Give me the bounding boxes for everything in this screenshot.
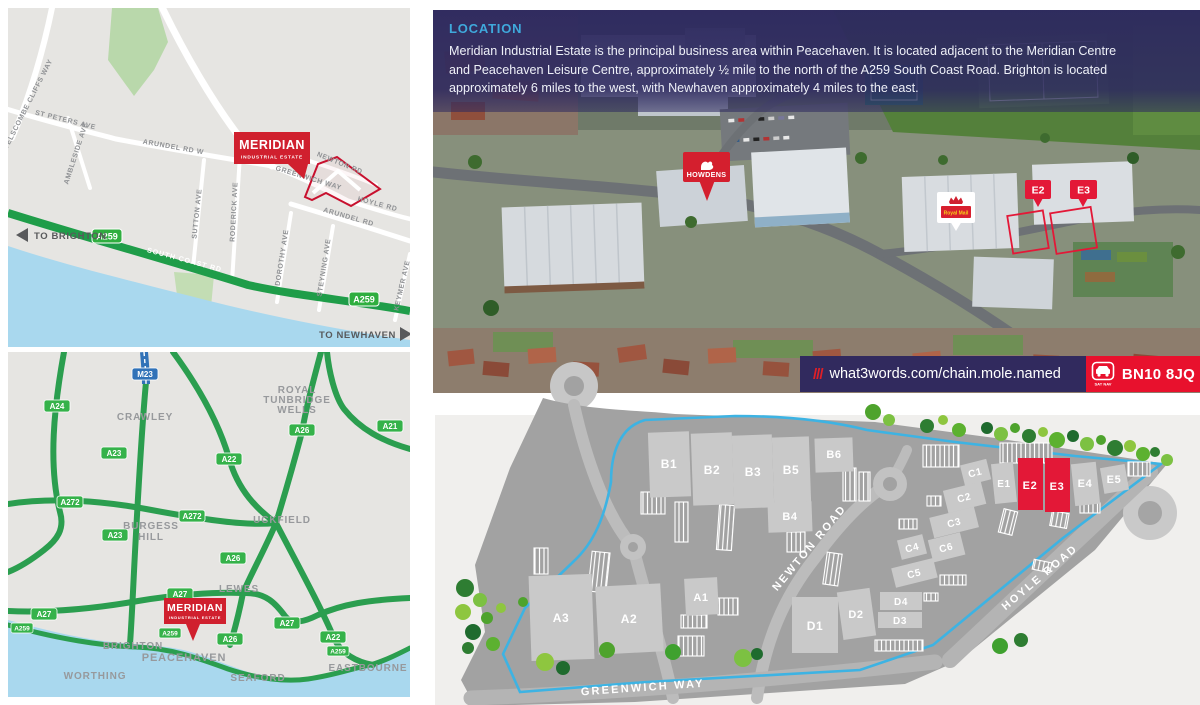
unit-label: E3 [1050, 481, 1065, 493]
svg-text:SAT NAV: SAT NAV [1094, 382, 1111, 387]
unit-label: E4 [1078, 478, 1093, 490]
svg-text:A21: A21 [383, 422, 398, 431]
place-label: HILL [138, 532, 164, 543]
howdens-bird-icon [701, 162, 713, 170]
unit-label: C4 [904, 541, 920, 555]
unit-label: C3 [946, 516, 962, 530]
container-yard [1073, 242, 1173, 297]
howdens-label: HOWDENS [687, 170, 727, 179]
location-body-line: and Peacehaven Leisure Centre, approxima… [449, 61, 1184, 80]
unit-building [595, 583, 663, 654]
route-badge: A259 [11, 623, 33, 633]
unit-label: B4 [782, 511, 798, 523]
unit-building [837, 588, 876, 640]
place-label: BURGESS [123, 521, 179, 532]
unit-building [891, 558, 938, 588]
unit-label: E2 [1023, 480, 1038, 492]
route-badge: A21 [377, 420, 403, 432]
unit-building [960, 459, 991, 486]
route-badge: A23 [102, 529, 128, 541]
svg-text:A259: A259 [14, 626, 30, 633]
svg-text:A26: A26 [223, 635, 238, 644]
place-label: PEACEHAVEN [142, 652, 227, 664]
place-label: SEAFORD [230, 673, 285, 684]
unit-label: B3 [745, 465, 762, 479]
unit-building [767, 501, 812, 533]
unit-label: C2 [956, 491, 972, 505]
route-badge: A259 [327, 646, 349, 656]
location-body-line: approximately 6 miles to the west, with … [449, 79, 1184, 98]
place-label: UCKFIELD [253, 515, 311, 526]
royal-mail-label: Royal Mail [944, 211, 969, 217]
route-badge: A22 [320, 631, 346, 643]
postcode-bar: SAT NAV BN10 8JQ [1086, 356, 1200, 392]
unit-label: C1 [967, 466, 983, 480]
unit-building [772, 436, 811, 503]
svg-text:E3: E3 [1077, 185, 1090, 197]
unit-label: A1 [693, 592, 708, 604]
route-badge: A26 [220, 552, 246, 564]
street-map: TELSCOMBE CLIFFS WAY ST PETERS AVE AMBLE… [8, 8, 410, 347]
unit-label: E5 [1107, 474, 1122, 486]
unit-building [880, 592, 922, 610]
route-badge: M23 [132, 368, 158, 380]
route-badge: A23 [101, 447, 127, 459]
unit-building [928, 532, 966, 562]
what3words-icon: /// [813, 366, 823, 383]
unit-building [1071, 462, 1100, 506]
unit-building [648, 431, 691, 497]
unit-label: E1 [997, 479, 1010, 490]
location-heading: LOCATION [449, 21, 1184, 36]
unit-building [529, 574, 595, 661]
route-badge: A26 [217, 633, 243, 645]
site-plan-panel: B1 B2 B3 B5 B6 B4 C1 C2 C3 C4 C6 C5 E1 E… [435, 350, 1200, 705]
roundabouts [620, 467, 907, 560]
estate-name: MERIDIAN [167, 602, 223, 614]
region-map: CRAWLEY UCKFIELD LEWES WORTHING BRIGHTON… [8, 352, 410, 697]
site-ground [461, 362, 1177, 705]
svg-text:A23: A23 [108, 531, 123, 540]
svg-text:TO BRIGHTON: TO BRIGHTON [34, 231, 107, 242]
unit-label: B6 [826, 449, 841, 461]
unit-building [1100, 464, 1129, 494]
unit-building [943, 481, 986, 513]
route-badge: A22 [216, 453, 242, 465]
estate-subtitle: INDUSTRIAL ESTATE [169, 615, 221, 620]
route-badge: A24 [44, 400, 70, 412]
svg-text:A272: A272 [60, 498, 80, 507]
place-label: WORTHING [64, 671, 127, 682]
roundabout [1123, 486, 1177, 540]
svg-text:A27: A27 [173, 590, 188, 599]
svg-text:A259: A259 [353, 295, 375, 305]
plan-road-labels: NEWTON ROAD HOYLE ROAD GREENWICH WAY [580, 503, 1080, 699]
unit-label: D3 [893, 616, 907, 627]
postcode: BN10 8JQ [1122, 366, 1195, 383]
unit-building [814, 437, 853, 472]
svg-text:A24: A24 [50, 402, 65, 411]
unit-building-highlight [1018, 458, 1043, 510]
place-label: EASTBOURNE [328, 663, 407, 674]
satnav-car-icon: SAT NAV [1091, 361, 1115, 387]
unit-building [732, 434, 775, 508]
route-badge: A272 [57, 496, 83, 508]
svg-text:A259: A259 [162, 631, 178, 638]
route-badge: A272 [179, 510, 205, 522]
what3words-address: what3words.com/chain.mole.named [830, 366, 1061, 382]
unit-buildings [529, 431, 1130, 661]
unit-building [792, 597, 838, 653]
svg-text:A22: A22 [222, 455, 237, 464]
unit-label: B1 [661, 457, 678, 471]
trees [455, 404, 1173, 675]
unit-label: D1 [807, 619, 824, 633]
svg-text:A23: A23 [107, 449, 122, 458]
site-boundary [503, 416, 1161, 692]
route-badge: A259 [349, 292, 379, 306]
svg-text:E2: E2 [1032, 185, 1045, 197]
what3words-bar: /// what3words.com/chain.mole.named [800, 356, 1086, 392]
unit-label: C6 [938, 541, 954, 555]
road-label: GREENWICH WAY [580, 678, 705, 699]
unit-building [684, 577, 719, 616]
route-badge: A27 [274, 617, 300, 629]
svg-text:A26: A26 [226, 554, 241, 563]
parking-bays [534, 443, 1150, 656]
unit-labels: B1 B2 B3 B5 B6 B4 C1 C2 C3 C4 C6 C5 E1 E… [553, 449, 1122, 633]
plan-backdrop [435, 415, 1200, 705]
unit-label: B2 [704, 463, 721, 477]
svg-text:A26: A26 [295, 426, 310, 435]
place-label: CRAWLEY [117, 412, 173, 423]
unit-label: C5 [906, 567, 922, 581]
location-body-line: Meridian Industrial Estate is the princi… [449, 42, 1184, 61]
unit-building [691, 432, 734, 505]
unit-label: D2 [848, 609, 863, 621]
svg-text:A27: A27 [37, 610, 52, 619]
svg-text:A27: A27 [280, 619, 295, 628]
unit-label: A3 [553, 611, 570, 625]
site-plan: B1 B2 B3 B5 B6 B4 C1 C2 C3 C4 C6 C5 E1 E… [435, 350, 1200, 705]
route-badge: A259 [159, 628, 181, 638]
road-label: NEWTON ROAD [770, 503, 849, 594]
unit-label: A2 [621, 612, 638, 626]
street-map-panel: TELSCOMBE CLIFFS WAY ST PETERS AVE AMBLE… [8, 8, 410, 347]
road-label: HOYLE ROAD [1000, 542, 1081, 612]
estate-name: MERIDIAN [239, 138, 305, 152]
svg-text:TO NEWHAVEN: TO NEWHAVEN [319, 330, 396, 341]
route-badge: A26 [289, 424, 315, 436]
aerial-photo-panel: HOWDENS Royal Mail E2 E3 LOCATION Meridi… [433, 10, 1200, 393]
unit-building [878, 612, 922, 628]
region-map-panel: CRAWLEY UCKFIELD LEWES WORTHING BRIGHTON… [8, 352, 410, 697]
route-badge: A27 [31, 608, 57, 620]
estate-subtitle: INDUSTRIAL ESTATE [241, 155, 303, 161]
unit-building [991, 462, 1017, 504]
internal-roads [471, 405, 1150, 698]
place-label: BRIGHTON [103, 641, 163, 652]
svg-text:A259: A259 [330, 649, 346, 656]
svg-text:A22: A22 [326, 633, 341, 642]
svg-text:M23: M23 [137, 370, 153, 379]
location-overlay: LOCATION Meridian Industrial Estate is t… [433, 10, 1200, 112]
unit-building [929, 507, 979, 539]
unit-building-highlight [1045, 458, 1070, 512]
unit-label: D4 [894, 597, 908, 608]
place-label: LEWES [219, 584, 259, 595]
place-label: WELLS [277, 405, 317, 416]
unit-label: B5 [783, 463, 800, 477]
unit-building [897, 534, 927, 560]
svg-text:A272: A272 [182, 512, 202, 521]
